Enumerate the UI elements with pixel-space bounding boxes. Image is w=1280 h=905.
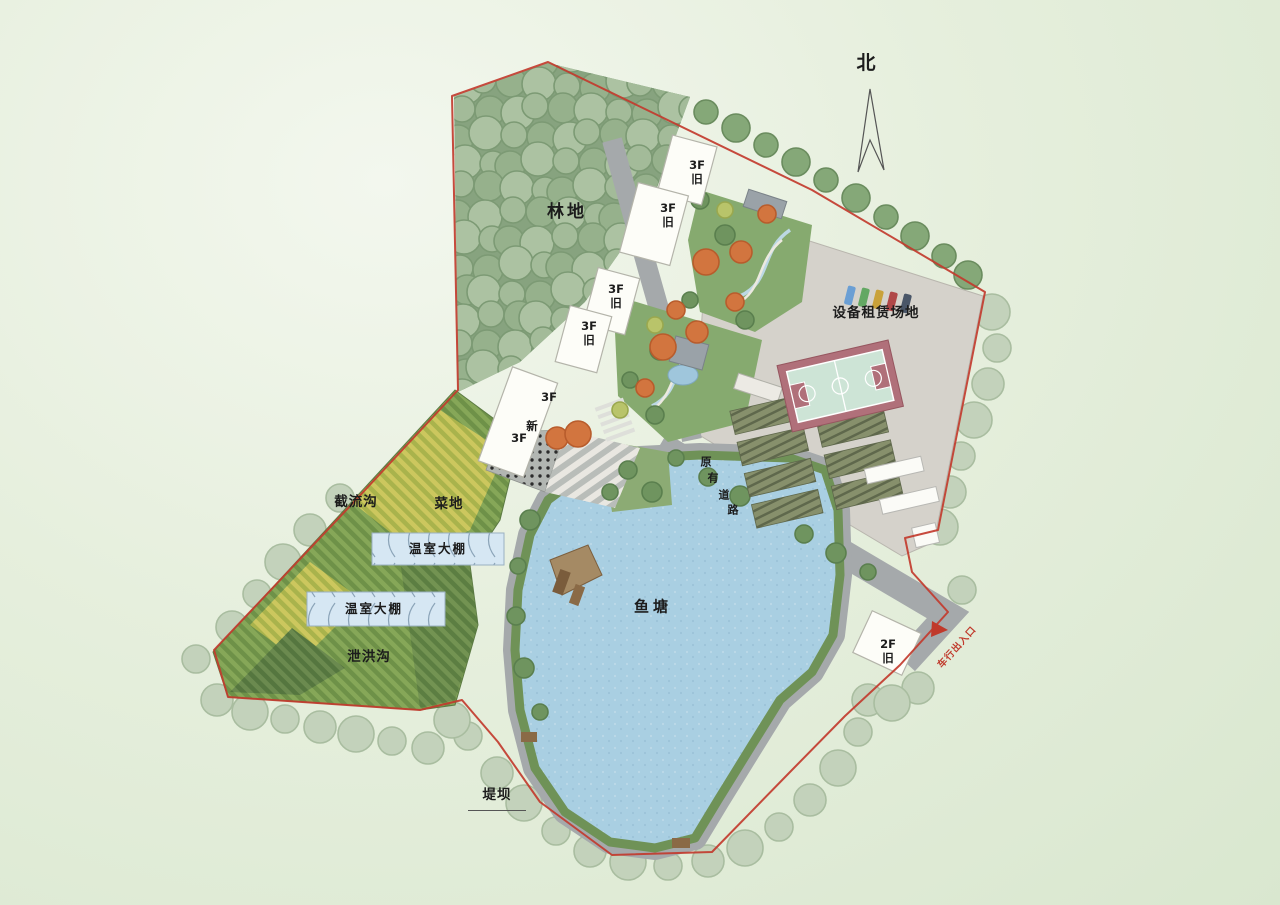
forest-tree-icon xyxy=(414,324,448,358)
forest-tree-icon xyxy=(425,359,451,385)
bush-icon xyxy=(619,461,637,479)
forest-tree-icon xyxy=(627,44,661,78)
tree-icon xyxy=(972,368,1004,400)
tree-icon xyxy=(727,830,763,866)
tree-icon xyxy=(338,716,374,752)
bush-icon xyxy=(860,564,876,580)
bush-icon xyxy=(646,406,664,424)
tree-icon xyxy=(481,757,513,789)
forest-tree-icon xyxy=(446,330,472,356)
tree-icon xyxy=(983,334,1011,362)
forest-tree-icon xyxy=(500,197,526,223)
forest-tree-icon xyxy=(499,246,533,280)
autumn-tree-icon xyxy=(565,421,591,447)
forest-tree-icon xyxy=(416,174,450,208)
tree-icon xyxy=(694,100,718,124)
forest-tree-icon xyxy=(521,142,555,176)
autumn-tree-icon xyxy=(726,293,744,311)
forest-tree-icon xyxy=(530,327,556,353)
bush-icon xyxy=(510,558,526,574)
autumn-tree-icon xyxy=(686,321,708,343)
forest-tree-icon xyxy=(466,350,500,384)
forest-tree-icon xyxy=(428,125,454,151)
bush-icon xyxy=(514,658,534,678)
forest-tree-icon xyxy=(447,220,481,254)
bush-icon xyxy=(532,704,548,720)
bush-icon xyxy=(520,510,540,530)
autumn-tree-icon xyxy=(546,427,568,449)
tree-icon xyxy=(842,184,870,212)
bush-icon xyxy=(642,482,662,502)
dam-leader-line xyxy=(468,810,526,811)
forest-tree-icon xyxy=(444,41,474,71)
forest-tree-icon xyxy=(551,272,585,306)
forest-tree-icon xyxy=(685,41,715,71)
tree-icon xyxy=(794,784,826,816)
forest-tree-icon xyxy=(427,200,453,226)
forest-tree-icon xyxy=(573,168,607,202)
tree-icon xyxy=(182,645,210,673)
tree-icon xyxy=(782,148,810,176)
bush-icon xyxy=(668,450,684,466)
bush-icon xyxy=(795,525,813,543)
forest-tree-icon xyxy=(423,70,453,100)
tree-icon xyxy=(304,711,336,743)
forest-tree-icon xyxy=(469,116,503,150)
autumn-tree-icon xyxy=(667,301,685,319)
forest-tree-icon xyxy=(601,44,631,74)
greenhouse-1 xyxy=(372,533,504,565)
forest-tree-icon xyxy=(448,171,474,197)
bush-icon xyxy=(507,607,525,625)
accent-tree-icon xyxy=(647,317,663,333)
forest-tree-icon xyxy=(470,41,504,75)
accent-tree-icon xyxy=(717,202,733,218)
site-plan-canvas xyxy=(0,0,1280,905)
tree-icon xyxy=(948,576,976,604)
bush-icon xyxy=(602,484,618,500)
forest-tree-icon xyxy=(417,90,451,124)
forest-tree-icon xyxy=(552,223,578,249)
forest-tree-icon xyxy=(575,44,601,70)
bush-icon xyxy=(715,225,735,245)
forest-tree-icon xyxy=(418,41,444,67)
greenhouse-2 xyxy=(307,592,445,626)
forest-tree-icon xyxy=(415,249,449,283)
forest-tree-icon xyxy=(659,41,685,67)
tree-icon xyxy=(954,261,982,289)
forest-tree-icon xyxy=(478,301,504,327)
tree-icon xyxy=(378,727,406,755)
forest-tree-icon xyxy=(574,119,600,145)
tree-icon xyxy=(874,685,910,721)
forest-tree-icon xyxy=(626,145,652,171)
tree-icon xyxy=(874,205,898,229)
autumn-tree-icon xyxy=(758,205,776,223)
autumn-tree-icon xyxy=(693,249,719,275)
tree-icon xyxy=(844,718,872,746)
forest-tree-icon xyxy=(502,47,528,73)
tree-icon xyxy=(754,133,778,157)
tree-icon xyxy=(412,732,444,764)
tree-icon xyxy=(814,168,838,192)
forest-tree-icon xyxy=(421,229,451,259)
forest-tree-icon xyxy=(426,275,452,301)
forest-tree-icon xyxy=(553,148,579,174)
bush-icon xyxy=(699,468,717,486)
bush-icon xyxy=(730,486,750,506)
bush-icon xyxy=(736,311,754,329)
autumn-tree-icon xyxy=(650,334,676,360)
accent-tree-icon xyxy=(612,402,628,418)
tree-icon xyxy=(271,705,299,733)
tree-icon xyxy=(932,244,956,268)
north-arrow-icon xyxy=(858,89,884,172)
autumn-tree-icon xyxy=(636,379,654,397)
forest-tree-icon xyxy=(501,122,527,148)
tree-icon xyxy=(722,114,750,142)
forest-tree-icon xyxy=(420,304,450,334)
forest-tree-icon xyxy=(522,93,548,119)
bush-icon xyxy=(826,543,846,563)
autumn-tree-icon xyxy=(730,241,752,263)
forest-tree-icon xyxy=(422,145,452,175)
forest-tree-icon xyxy=(627,70,653,96)
tree-icon xyxy=(765,813,793,841)
tree-icon xyxy=(820,750,856,786)
